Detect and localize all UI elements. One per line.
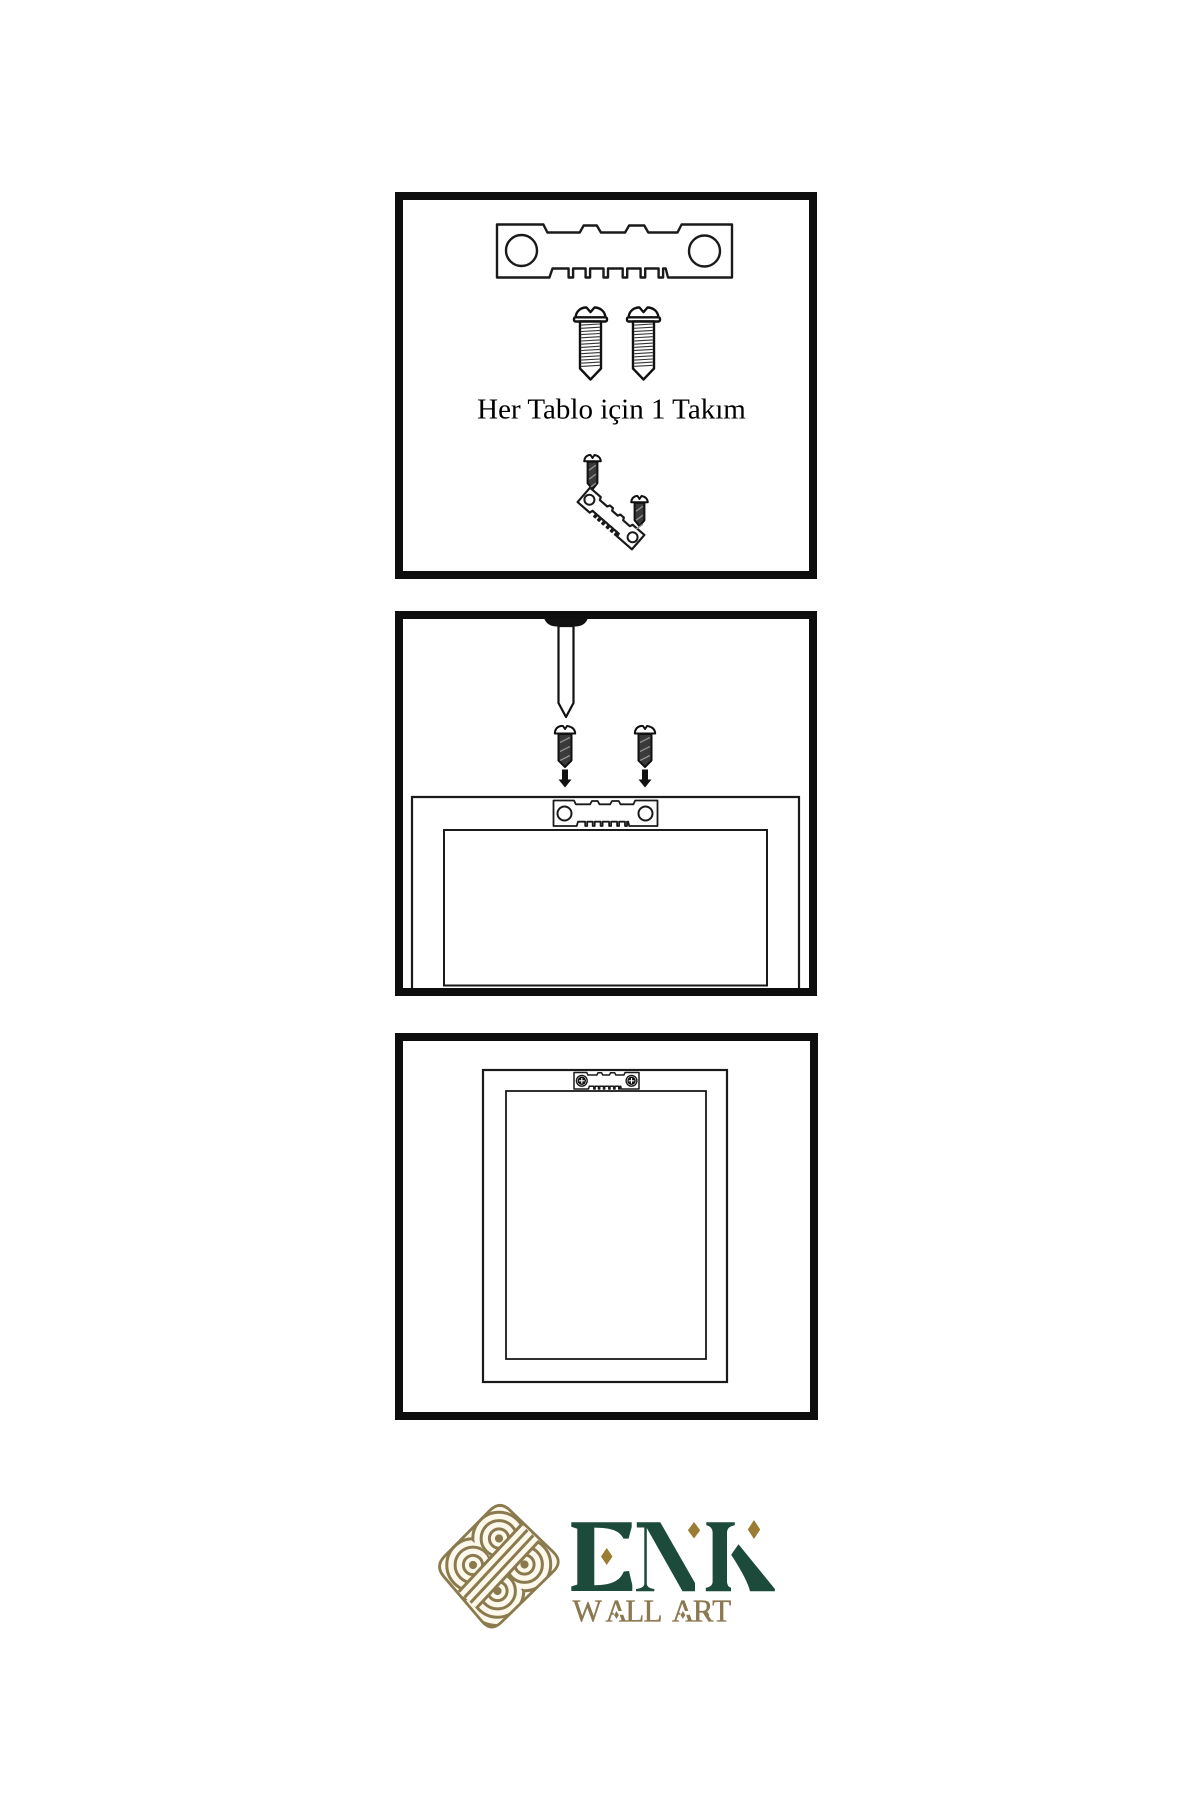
- svg-text:A: A: [672, 1593, 695, 1628]
- svg-text:R: R: [693, 1593, 714, 1628]
- svg-text:W: W: [573, 1593, 603, 1628]
- svg-text:L: L: [644, 1593, 663, 1628]
- svg-text:Her Tablo için 1 Takım: Her Tablo için 1 Takım: [477, 394, 746, 426]
- svg-text:L: L: [625, 1593, 644, 1628]
- svg-text:T: T: [712, 1593, 731, 1628]
